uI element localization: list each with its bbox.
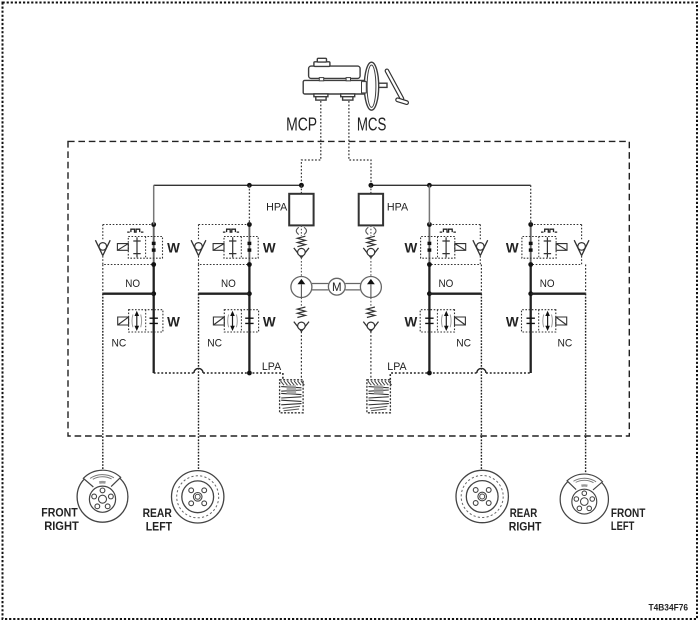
svg-text:T4B34F76: T4B34F76	[649, 603, 689, 613]
svg-text:MCS: MCS	[357, 115, 387, 135]
svg-text:REAR: REAR	[143, 506, 172, 520]
svg-text:NC: NC	[558, 338, 573, 350]
svg-text:NO: NO	[125, 278, 140, 290]
svg-text:REAR: REAR	[510, 506, 538, 520]
svg-text:FRONT: FRONT	[41, 506, 78, 520]
svg-text:RIGHT: RIGHT	[44, 519, 79, 533]
svg-text:LPA: LPA	[387, 361, 407, 373]
svg-text:W: W	[405, 315, 418, 330]
svg-text:LPA: LPA	[262, 361, 282, 373]
svg-text:NC: NC	[207, 338, 222, 350]
svg-text:HPA: HPA	[266, 202, 288, 214]
svg-text:NO: NO	[439, 278, 454, 290]
svg-text:W: W	[167, 315, 180, 330]
svg-text:LEFT: LEFT	[146, 520, 173, 534]
svg-text:RIGHT: RIGHT	[509, 520, 542, 534]
svg-text:W: W	[405, 240, 418, 255]
svg-text:LEFT: LEFT	[611, 519, 635, 533]
svg-text:W: W	[506, 240, 519, 255]
svg-text:MCP: MCP	[286, 115, 317, 135]
svg-text:NC: NC	[456, 338, 471, 350]
svg-text:NO: NO	[221, 278, 236, 290]
svg-text:HPA: HPA	[387, 202, 409, 214]
svg-text:NO: NO	[540, 278, 555, 290]
svg-text:W: W	[506, 315, 519, 330]
svg-text:W: W	[263, 240, 276, 255]
svg-text:W: W	[167, 240, 180, 255]
svg-text:W: W	[263, 315, 276, 330]
svg-text:NC: NC	[112, 338, 127, 350]
svg-text:M: M	[332, 282, 342, 294]
